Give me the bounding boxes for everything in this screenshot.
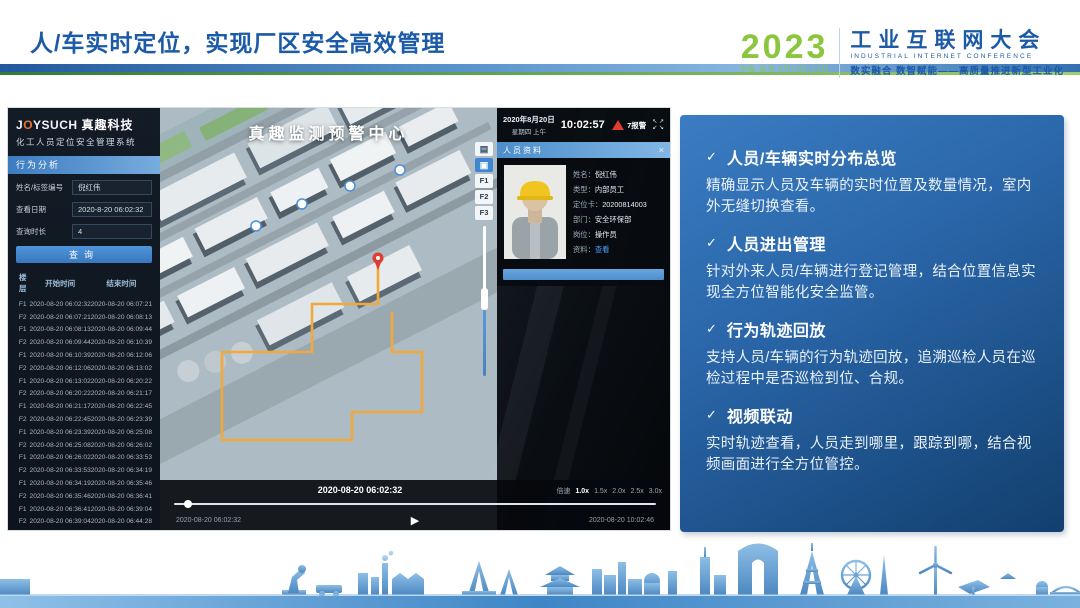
feature-item: ✓人员/车辆实时分布总览精确显示人员及车辆的实时位置及数量情况，室内外无缝切换查… [706,145,1038,218]
factory-3d-map[interactable]: 真趣监测预警中心 [160,108,497,530]
table-cell: 2020-08-20 06:36:41 [30,503,91,516]
check-icon: ✓ [706,321,717,337]
table-cell: 2020-08-20 06:47:19 [91,528,152,530]
brand-name: 真趣科技 [82,116,134,133]
speed-option[interactable]: 2.5x [631,488,644,495]
table-cell: 2020-08-20 06:13:02 [30,375,91,388]
table-cell: 2020-08-20 06:35:46 [91,477,152,490]
alarm-triangle-icon [612,120,624,130]
table-row[interactable]: F12020-08-20 06:21:172020-08-20 06:22:45 [16,400,152,413]
table-cell: F1 [16,349,30,362]
field-label: 姓名/标签编号 [16,182,72,193]
table-cell: F2 [16,362,30,375]
table-row[interactable]: F12020-08-20 06:36:412020-08-20 06:39:04 [16,503,152,516]
timeline-handle[interactable] [184,500,192,508]
floor-time-table: 楼层 开始时间 结束时间 F12020-08-20 06:02:322020-0… [16,269,152,530]
table-cell: F1 [16,298,30,311]
table-cell: F1 [16,426,30,439]
person-field: 资料：查看 [573,242,663,257]
speed-option[interactable]: 2.0x [612,488,625,495]
table-cell: F2 [16,336,30,349]
alarm-count: 7报警 [627,120,646,131]
person-field-label: 岗位： [573,227,595,242]
table-cell: 2020-08-20 06:21:17 [30,400,91,413]
table-cell: 2020-08-20 06:22:45 [30,413,91,426]
speed-option[interactable]: 1.0x [575,488,589,495]
table-cell: 2020-08-20 06:07:21 [91,298,152,311]
table-row[interactable]: F22020-08-20 06:09:442020-08-20 06:10:39 [16,336,152,349]
feature-item: ✓行为轨迹回放支持人员/车辆的行为轨迹回放，追溯巡检人员在巡检过程中是否巡检到位… [706,317,1038,390]
person-panel-action-bar[interactable] [503,269,664,280]
feature-item: ✓视频联动实时轨迹查看，人员走到哪里，跟踪到哪，结合视频画面进行全方位管控。 [706,403,1038,476]
table-row[interactable]: F12020-08-20 06:44:282020-08-20 06:47:19 [16,528,152,530]
monitoring-app-screenshot: 真趣监测预警中心 ▤ ▣ F1F2F3 2020年8月20日 星期四 上午 10… [8,108,670,530]
person-field: 类型：内部员工 [573,182,663,197]
logo-divider [839,28,840,78]
status-date: 2020年8月20日 [503,114,555,125]
table-cell: 2020-08-20 06:09:44 [91,324,152,337]
slide: 人/车实时定位，实现厂区安全高效管理 2023 中国·苏州 9月11日-13日 … [0,0,1080,608]
floor-zoom-slider[interactable] [483,226,486,376]
check-icon: ✓ [706,407,717,423]
floor-toolbar: ▤ ▣ F1F2F3 [474,142,494,376]
floor-button-f2[interactable]: F2 [475,190,493,204]
joysuch-logo: JOYSUCH [16,118,78,132]
table-row[interactable]: F22020-08-20 06:20:222020-08-20 06:21:17 [16,388,152,401]
system-name: 化工人员定位安全管理系统 [16,136,152,148]
person-field: 部门：安全环保部 [573,212,663,227]
feature-body: 针对外来人员/车辆进行登记管理，结合位置信息实现全方位智能化安全监管。 [706,262,1038,304]
col-floor: 楼层 [16,269,30,298]
speed-option[interactable]: 1.5x [594,488,607,495]
table-cell: F2 [16,439,30,452]
table-cell: F2 [16,311,30,324]
floor-button-f1[interactable]: F1 [475,174,493,188]
table-cell: 2020-08-20 06:22:45 [91,400,152,413]
table-cell: 2020-08-20 06:10:39 [91,336,152,349]
table-cell: 2020-08-20 06:10:39 [30,349,91,362]
table-cell: F1 [16,528,30,530]
close-icon[interactable]: × [659,145,664,155]
map-canvas [160,108,497,530]
col-end: 结束时间 [91,269,152,298]
app-status-bar: 2020年8月20日 星期四 上午 10:02:57 7报警 ↖ ↗↙ ↘ [497,108,670,142]
field-label: 查询时长 [16,226,72,237]
table-cell: 2020-08-20 06:12:06 [30,362,91,375]
app-sidebar: JOYSUCH 真趣科技 化工人员定位安全管理系统 行为分析 姓名/标签编号倪红… [8,108,160,530]
table-row[interactable]: F22020-08-20 06:12:062020-08-20 06:13:02 [16,362,152,375]
feature-title: 视频联动 [727,403,793,427]
feature-body: 支持人员/车辆的行为轨迹回放，追溯巡检人员在巡检过程中是否巡检到位、合规。 [706,348,1038,390]
table-cell: 2020-08-20 06:44:28 [91,516,152,529]
table-row[interactable]: F12020-08-20 06:26:022020-08-20 06:33:53 [16,452,152,465]
table-cell: 2020-08-20 06:08:13 [91,311,152,324]
table-cell: 2020-08-20 06:26:02 [30,452,91,465]
table-cell: F2 [16,516,30,529]
person-field: 岗位：操作员 [573,227,663,242]
feature-body: 精确显示人员及车辆的实时位置及数量情况，室内外无缝切换查看。 [706,176,1038,218]
sidebar-section-title: 行为分析 [8,156,160,174]
table-cell: F1 [16,400,30,413]
table-cell: 2020-08-20 06:20:22 [91,375,152,388]
person-field-label: 定位卡： [573,197,602,212]
timeline-start-time: 2020-08-20 06:02:32 [176,517,241,524]
feature-item: ✓人员进出管理针对外来人员/车辆进行登记管理，结合位置信息实现全方位智能化安全监… [706,231,1038,304]
speed-label: 倍速 [556,486,570,496]
check-icon: ✓ [706,149,717,165]
table-row[interactable]: F22020-08-20 06:33:532020-08-20 06:34:19 [16,464,152,477]
table-cell: 2020-08-20 06:21:17 [91,388,152,401]
table-row[interactable]: F12020-08-20 06:34:192020-08-20 06:35:46 [16,477,152,490]
person-field-value: 内部员工 [595,182,624,197]
page-title: 人/车实时定位，实现厂区安全高效管理 [30,24,445,58]
table-cell: 2020-08-20 06:25:08 [30,439,91,452]
conference-venue: 中国·苏州 9月11日-13日 [740,64,830,74]
table-cell: 2020-08-20 06:23:39 [91,413,152,426]
worker-photo [504,165,566,259]
feature-header: ✓行为轨迹回放 [706,317,1038,341]
floor-button-f3[interactable]: F3 [475,206,493,220]
person-field-value: 操作员 [595,227,617,242]
status-time: 10:02:57 [561,119,605,131]
person-field-value: 20200814003 [602,197,647,212]
person-field-label: 姓名： [573,167,595,182]
table-cell: F1 [16,477,30,490]
table-cell: 2020-08-20 06:39:04 [91,503,152,516]
view-profile-link[interactable]: 查看 [595,242,610,257]
feature-panel: ✓人员/车辆实时分布总览精确显示人员及车辆的实时位置及数量情况，室内外无缝切换查… [680,115,1064,532]
conference-logo: 2023 中国·苏州 9月11日-13日 工业互联网大会 INDUSTRIAL … [740,28,1064,78]
feature-title: 人员/车辆实时分布总览 [727,145,897,169]
feature-header: ✓人员进出管理 [706,231,1038,255]
sidebar-field: 查看日期2020-8-20 06:02:32 [16,202,152,217]
table-row[interactable]: F22020-08-20 06:22:452020-08-20 06:23:39 [16,413,152,426]
layers-icon[interactable]: ▤ [475,142,493,156]
table-cell: F1 [16,375,30,388]
sidebar-field: 查询时长4 [16,224,152,239]
table-cell: F1 [16,452,30,465]
timeline-end-time: 2020-08-20 10:02:46 [589,517,654,524]
table-cell: 2020-08-20 06:02:32 [30,298,91,311]
table-cell: 2020-08-20 06:33:53 [30,464,91,477]
field-label: 查看日期 [16,204,72,215]
field-input[interactable]: 4 [72,224,152,239]
table-cell: F1 [16,503,30,516]
table-row[interactable]: F12020-08-20 06:02:322020-08-20 06:07:21 [16,298,152,311]
table-cell: 2020-08-20 06:34:19 [30,477,91,490]
person-field: 定位卡：20200814003 [573,197,663,212]
table-cell: F2 [16,388,30,401]
table-cell: 2020-08-20 06:26:02 [91,439,152,452]
play-button[interactable]: ▶ [411,514,419,527]
table-cell: 2020-08-20 06:44:28 [30,528,91,530]
table-row[interactable]: F12020-08-20 06:08:132020-08-20 06:09:44 [16,324,152,337]
conference-name-cn: 工业互联网大会 [850,30,1064,52]
table-cell: F2 [16,413,30,426]
feature-title: 人员进出管理 [727,231,826,255]
slider-knob[interactable] [481,288,488,310]
feature-header: ✓人员/车辆实时分布总览 [706,145,1038,169]
conference-year: 2023 [740,32,830,62]
table-cell: 2020-08-20 06:08:13 [30,324,91,337]
table-cell: 2020-08-20 06:39:04 [30,516,91,529]
table-cell: 2020-08-20 06:36:41 [91,490,152,503]
search-button[interactable]: 查询 [16,246,152,263]
person-field-label: 类型： [573,182,595,197]
person-field-value: 倪红伟 [595,167,617,182]
field-input[interactable]: 2020-8-20 06:02:32 [72,202,152,217]
person-field-label: 资料： [573,242,595,257]
sidebar-field: 姓名/标签编号倪红伟 [16,180,152,195]
table-cell: 2020-08-20 06:07:21 [30,311,91,324]
timeline-current-time: 2020-08-20 06:02:32 [160,485,560,495]
playback-timeline: 2020-08-20 06:02:32 倍速 1.0x1.5x2.0x2.5x3… [160,480,670,530]
table-cell: 2020-08-20 06:35:46 [30,490,91,503]
table-cell: 2020-08-20 06:23:39 [30,426,91,439]
check-icon: ✓ [706,235,717,251]
field-input[interactable]: 倪红伟 [72,180,152,195]
table-row[interactable]: F22020-08-20 06:25:082020-08-20 06:26:02 [16,439,152,452]
alarm-badge[interactable]: 7报警 [612,120,646,131]
table-cell: F2 [16,490,30,503]
conference-slogan: 数实融合 数智赋能——高质量推进新型工业化 [850,63,1064,77]
table-cell: F2 [16,464,30,477]
person-info-panel: 人员资料 × 姓名：倪红伟类型：内部员工定位卡：20200814003部门：安 [497,142,670,286]
col-start: 开始时间 [30,269,91,298]
feature-header: ✓视频联动 [706,403,1038,427]
feature-title: 行为轨迹回放 [727,317,826,341]
person-panel-title: 人员资料 [503,145,543,156]
table-cell: 2020-08-20 06:20:22 [30,388,91,401]
table-row[interactable]: F12020-08-20 06:10:392020-08-20 06:12:06 [16,349,152,362]
speed-option[interactable]: 3.0x [649,488,662,495]
feature-body: 实时轨迹查看，人员走到哪里，跟踪到哪，结合视频画面进行全方位管控。 [706,434,1038,476]
table-cell: F1 [16,324,30,337]
table-row[interactable]: F12020-08-20 06:23:392020-08-20 06:25:08 [16,426,152,439]
table-cell: 2020-08-20 06:34:19 [91,464,152,477]
table-cell: 2020-08-20 06:12:06 [91,349,152,362]
table-cell: 2020-08-20 06:13:02 [91,362,152,375]
person-field-label: 部门： [573,212,595,227]
table-row[interactable]: F12020-08-20 06:13:022020-08-20 06:20:22 [16,375,152,388]
map-title: 真趣监测预警中心 [160,120,497,144]
selected-floor-button[interactable]: ▣ [475,158,493,172]
table-cell: 2020-08-20 06:33:53 [91,452,152,465]
table-cell: 2020-08-20 06:25:08 [91,426,152,439]
person-field: 姓名：倪红伟 [573,167,663,182]
fullscreen-icon[interactable]: ↖ ↗↙ ↘ [652,119,664,131]
city-skyline-illustration [0,535,1080,608]
timeline-track[interactable] [174,503,656,505]
table-cell: 2020-08-20 06:09:44 [30,336,91,349]
table-row[interactable]: F22020-08-20 06:07:212020-08-20 06:08:13 [16,311,152,324]
table-row[interactable]: F22020-08-20 06:35:462020-08-20 06:36:41 [16,490,152,503]
status-weekday: 星期四 上午 [503,126,555,136]
person-field-value: 安全环保部 [595,212,631,227]
table-row[interactable]: F22020-08-20 06:39:042020-08-20 06:44:28 [16,516,152,529]
speed-selector: 倍速 1.0x1.5x2.0x2.5x3.0x [556,486,662,496]
conference-name-en: INDUSTRIAL INTERNET CONFERENCE [850,53,1064,60]
